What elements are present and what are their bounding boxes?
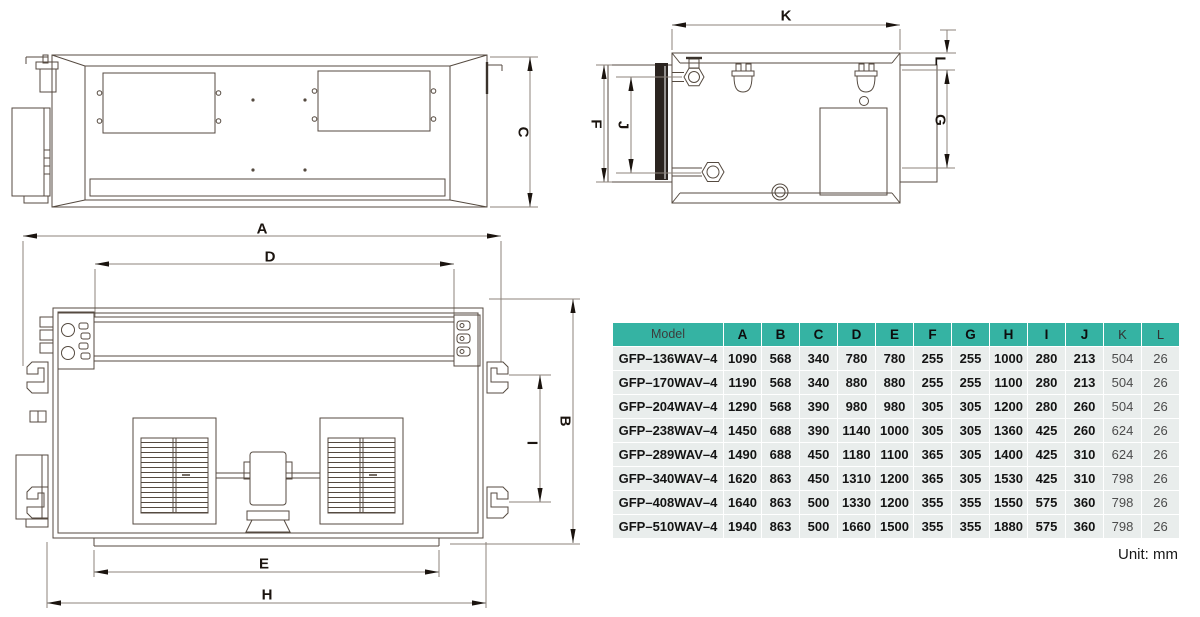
plan-view-drawing: A D	[16, 221, 580, 609]
value-cell: 305	[914, 395, 951, 418]
access-panel-left	[103, 73, 215, 133]
hanging-lug	[487, 362, 508, 393]
dim-label-e: E	[259, 556, 269, 573]
value-cell: 26	[1142, 515, 1179, 538]
value-cell: 1090	[724, 347, 761, 370]
value-cell: 1310	[838, 467, 875, 490]
value-cell: 280	[1028, 347, 1065, 370]
value-cell: 624	[1104, 443, 1141, 466]
value-cell: 450	[800, 467, 837, 490]
value-cell: 1330	[838, 491, 875, 514]
hanging-bracket-right	[855, 64, 877, 92]
header-j: J	[1066, 323, 1103, 346]
hanging-lug	[487, 487, 508, 518]
value-cell: 26	[1142, 419, 1179, 442]
value-cell: 260	[1066, 419, 1103, 442]
air-filter	[655, 63, 668, 180]
value-cell: 310	[1066, 443, 1103, 466]
value-cell: 305	[952, 467, 989, 490]
model-cell: GFP–204WAV–4	[613, 395, 723, 418]
header-i: I	[1028, 323, 1065, 346]
side-view-drawing: K	[588, 8, 957, 204]
header-model: Model	[613, 323, 723, 346]
dim-label-j: J	[615, 121, 632, 129]
value-cell: 1190	[724, 371, 761, 394]
value-cell: 798	[1104, 515, 1141, 538]
discharge-flange	[900, 65, 937, 182]
header-h: H	[990, 323, 1027, 346]
value-cell: 355	[914, 515, 951, 538]
value-cell: 255	[914, 347, 951, 370]
value-cell: 568	[762, 347, 799, 370]
dim-label-h: H	[262, 587, 273, 604]
value-cell: 504	[1104, 347, 1141, 370]
value-cell: 1490	[724, 443, 761, 466]
value-cell: 1000	[876, 419, 913, 442]
value-cell: 305	[952, 395, 989, 418]
header-e: E	[876, 323, 913, 346]
value-cell: 1940	[724, 515, 761, 538]
table-row: GFP–340WAV–41620863450131012003653051530…	[613, 467, 1179, 490]
table-row: GFP–136WAV–41090568340780780255255100028…	[613, 347, 1179, 370]
value-cell: 880	[876, 371, 913, 394]
value-cell: 255	[914, 371, 951, 394]
model-cell: GFP–170WAV–4	[613, 371, 723, 394]
value-cell: 26	[1142, 491, 1179, 514]
fan-coil-dimension-sheet: C K	[0, 0, 1200, 617]
dim-label-f: F	[588, 119, 605, 128]
value-cell: 863	[762, 515, 799, 538]
value-cell: 26	[1142, 467, 1179, 490]
value-cell: 980	[838, 395, 875, 418]
dim-d	[95, 264, 454, 319]
value-cell: 213	[1066, 371, 1103, 394]
value-cell: 280	[1028, 371, 1065, 394]
drain-outlet	[772, 184, 788, 200]
value-cell: 1360	[990, 419, 1027, 442]
dim-label-d: D	[265, 249, 276, 266]
value-cell: 355	[952, 515, 989, 538]
coil-header-right	[454, 315, 480, 366]
value-cell: 688	[762, 443, 799, 466]
value-cell: 355	[952, 491, 989, 514]
model-cell: GFP–408WAV–4	[613, 491, 723, 514]
value-cell: 255	[952, 371, 989, 394]
value-cell: 575	[1028, 491, 1065, 514]
value-cell: 425	[1028, 419, 1065, 442]
value-cell: 390	[800, 419, 837, 442]
table-row: GFP–238WAV–41450688390114010003053051360…	[613, 419, 1179, 442]
value-cell: 1140	[838, 419, 875, 442]
value-cell: 780	[876, 347, 913, 370]
value-cell: 450	[800, 443, 837, 466]
value-cell: 798	[1104, 491, 1141, 514]
model-cell: GFP–340WAV–4	[613, 467, 723, 490]
value-cell: 1100	[876, 443, 913, 466]
table-row: GFP–408WAV–41640863500133012003553551550…	[613, 491, 1179, 514]
value-cell: 688	[762, 419, 799, 442]
value-cell: 360	[1066, 515, 1103, 538]
model-cell: GFP–289WAV–4	[613, 443, 723, 466]
value-cell: 26	[1142, 347, 1179, 370]
value-cell: 1640	[724, 491, 761, 514]
value-cell: 1200	[876, 491, 913, 514]
table-row: GFP–510WAV–41940863500166015003553551880…	[613, 515, 1179, 538]
value-cell: 1880	[990, 515, 1027, 538]
water-inlet-fitting	[672, 58, 704, 86]
fan-inlet-right	[320, 418, 403, 524]
hanging-bracket-left	[732, 64, 754, 92]
value-cell: 260	[1066, 395, 1103, 418]
value-cell: 305	[952, 419, 989, 442]
value-cell: 1180	[838, 443, 875, 466]
value-cell: 624	[1104, 419, 1141, 442]
model-cell: GFP–136WAV–4	[613, 347, 723, 370]
unit-note: Unit: mm	[990, 546, 1178, 563]
header-b: B	[762, 323, 799, 346]
dim-label-i: I	[524, 441, 541, 445]
value-cell: 1660	[838, 515, 875, 538]
dim-label-c: C	[515, 127, 532, 138]
value-cell: 1550	[990, 491, 1027, 514]
electrical-box	[12, 108, 50, 203]
hanging-lug	[27, 362, 48, 393]
value-cell: 390	[800, 395, 837, 418]
value-cell: 568	[762, 395, 799, 418]
value-cell: 340	[800, 371, 837, 394]
valve-fitting	[26, 55, 58, 92]
header-k: K	[1104, 323, 1141, 346]
value-cell: 26	[1142, 371, 1179, 394]
access-panel-right	[318, 71, 430, 131]
value-cell: 500	[800, 515, 837, 538]
dim-label-l: L	[932, 56, 949, 65]
value-cell: 360	[1066, 491, 1103, 514]
dim-label-a: A	[257, 221, 268, 238]
bottom-channel	[90, 179, 445, 196]
value-cell: 575	[1028, 515, 1065, 538]
value-cell: 340	[800, 347, 837, 370]
header-f: F	[914, 323, 951, 346]
value-cell: 1530	[990, 467, 1027, 490]
header-g: G	[952, 323, 989, 346]
value-cell: 355	[914, 491, 951, 514]
value-cell: 310	[1066, 467, 1103, 490]
value-cell: 504	[1104, 371, 1141, 394]
value-cell: 568	[762, 371, 799, 394]
value-cell: 780	[838, 347, 875, 370]
value-cell: 1290	[724, 395, 761, 418]
value-cell: 305	[952, 443, 989, 466]
value-cell: 26	[1142, 395, 1179, 418]
value-cell: 280	[1028, 395, 1065, 418]
value-cell: 863	[762, 467, 799, 490]
value-cell: 1500	[876, 515, 913, 538]
value-cell: 365	[914, 467, 951, 490]
knockout-hole	[860, 97, 869, 106]
value-cell: 880	[838, 371, 875, 394]
value-cell: 365	[914, 443, 951, 466]
dim-k	[672, 25, 900, 50]
table-row: GFP–170WAV–41190568340880880255255110028…	[613, 371, 1179, 394]
front-view-drawing: C	[12, 55, 538, 207]
fan-motor	[216, 452, 320, 532]
control-box	[820, 108, 887, 195]
hanger-hook	[487, 62, 502, 94]
value-cell: 425	[1028, 443, 1065, 466]
dim-i	[509, 375, 551, 502]
value-cell: 863	[762, 491, 799, 514]
header-c: C	[800, 323, 837, 346]
model-cell: GFP–510WAV–4	[613, 515, 723, 538]
water-outlet-fitting	[672, 163, 724, 182]
header-a: A	[724, 323, 761, 346]
value-cell: 1200	[990, 395, 1027, 418]
value-cell: 1620	[724, 467, 761, 490]
header-d: D	[838, 323, 875, 346]
dimension-spec-table: ModelABCDEFGHIJKL GFP–136WAV–41090568340…	[612, 322, 1180, 539]
value-cell: 26	[1142, 443, 1179, 466]
value-cell: 798	[1104, 467, 1141, 490]
table-row: GFP–289WAV–41490688450118011003653051400…	[613, 443, 1179, 466]
value-cell: 504	[1104, 395, 1141, 418]
dim-label-b: B	[557, 416, 574, 427]
value-cell: 255	[952, 347, 989, 370]
value-cell: 1100	[990, 371, 1027, 394]
value-cell: 500	[800, 491, 837, 514]
value-cell: 1000	[990, 347, 1027, 370]
table-row: GFP–204WAV–41290568390980980305305120028…	[613, 395, 1179, 418]
spec-table-header: ModelABCDEFGHIJKL	[613, 323, 1179, 346]
header-l: L	[1142, 323, 1179, 346]
value-cell: 980	[876, 395, 913, 418]
value-cell: 305	[914, 419, 951, 442]
model-cell: GFP–238WAV–4	[613, 419, 723, 442]
value-cell: 1200	[876, 467, 913, 490]
value-cell: 1400	[990, 443, 1027, 466]
dim-label-g: G	[932, 114, 949, 126]
fan-inlet-left	[133, 418, 216, 524]
hanging-lug	[27, 487, 48, 518]
value-cell: 425	[1028, 467, 1065, 490]
value-cell: 1450	[724, 419, 761, 442]
dim-label-k: K	[781, 8, 792, 25]
side-pipe-box	[16, 411, 48, 527]
coil-header-left	[58, 312, 94, 369]
unit-body	[53, 308, 483, 538]
value-cell: 213	[1066, 347, 1103, 370]
